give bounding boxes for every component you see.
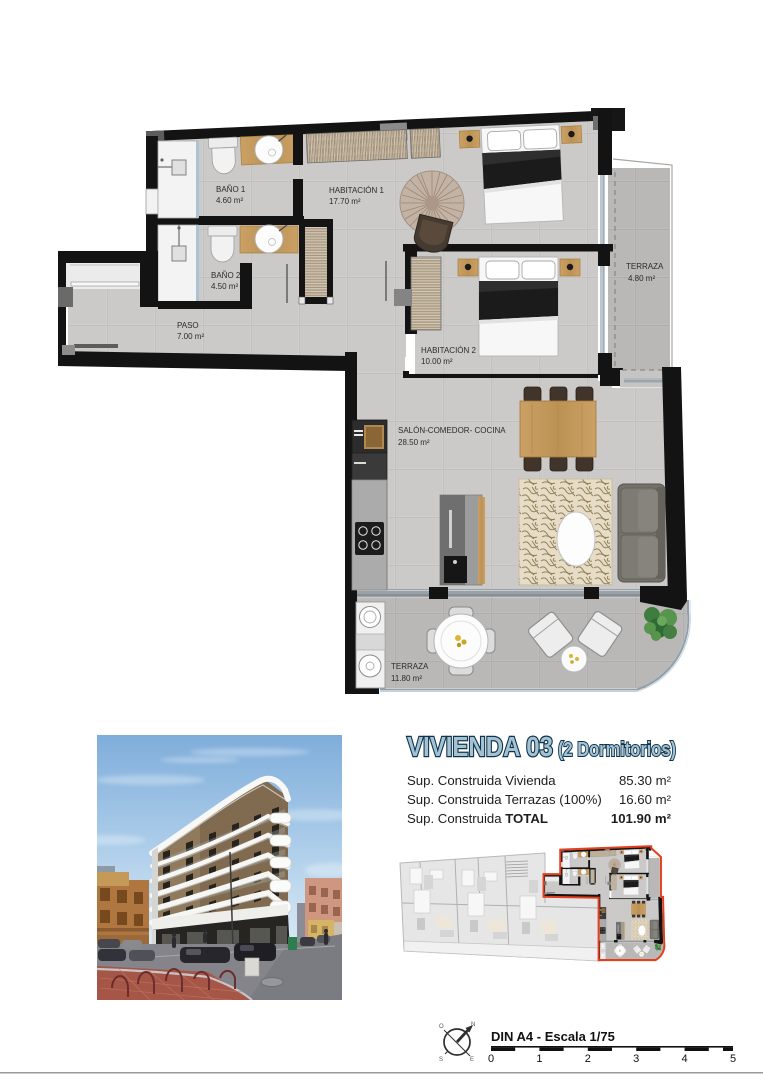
svg-text:2: 2 <box>585 1053 591 1065</box>
svg-text:28.50 m²: 28.50 m² <box>398 438 430 447</box>
svg-text:1: 1 <box>536 1053 542 1065</box>
svg-text:11.80 m²: 11.80 m² <box>391 674 422 683</box>
svg-text:Sup. Construida Vivienda: Sup. Construida Vivienda <box>407 773 556 788</box>
svg-text:101.90 m²: 101.90 m² <box>611 811 672 826</box>
svg-text:S: S <box>439 1057 443 1063</box>
svg-text:HABITACIÓN 2: HABITACIÓN 2 <box>421 346 477 355</box>
svg-text:0: 0 <box>488 1053 494 1065</box>
svg-text:Sup. Construida TOTAL: Sup. Construida TOTAL <box>407 811 548 826</box>
svg-text:10.00 m²: 10.00 m² <box>421 357 453 366</box>
svg-text:SALÓN-COMEDOR- COCINA: SALÓN-COMEDOR- COCINA <box>398 426 506 435</box>
svg-text:4: 4 <box>682 1053 688 1065</box>
svg-text:4.80 m²: 4.80 m² <box>628 274 655 283</box>
svg-text:O: O <box>439 1024 444 1030</box>
svg-text:(2 Dormitorios): (2 Dormitorios) <box>558 738 676 761</box>
svg-text:Sup. Construida Terrazas (100%: Sup. Construida Terrazas (100%) <box>407 792 602 807</box>
svg-text:16.60 m²: 16.60 m² <box>619 792 672 807</box>
svg-text:85.30 m²: 85.30 m² <box>619 773 672 788</box>
svg-text:TERRAZA: TERRAZA <box>391 662 429 671</box>
svg-text:HABITACIÓN 1: HABITACIÓN 1 <box>329 186 385 195</box>
svg-text:N: N <box>471 1022 475 1028</box>
svg-text:E: E <box>470 1057 474 1063</box>
svg-text:BAÑO 1: BAÑO 1 <box>216 185 246 194</box>
svg-text:4.50 m²: 4.50 m² <box>211 282 238 291</box>
svg-text:BAÑO 2: BAÑO 2 <box>211 271 241 280</box>
svg-text:PASO: PASO <box>177 321 199 330</box>
svg-text:4.60 m²: 4.60 m² <box>216 196 243 205</box>
svg-text:TERRAZA: TERRAZA <box>626 262 664 271</box>
svg-text:DIN A4 - Escala 1/75: DIN A4 - Escala 1/75 <box>491 1029 615 1044</box>
svg-text:17.70 m²: 17.70 m² <box>329 197 361 206</box>
svg-text:7.00 m²: 7.00 m² <box>177 332 204 341</box>
svg-text:VIVIENDA 03: VIVIENDA 03 <box>407 731 553 762</box>
svg-text:3: 3 <box>633 1053 639 1065</box>
svg-text:5: 5 <box>730 1053 736 1065</box>
